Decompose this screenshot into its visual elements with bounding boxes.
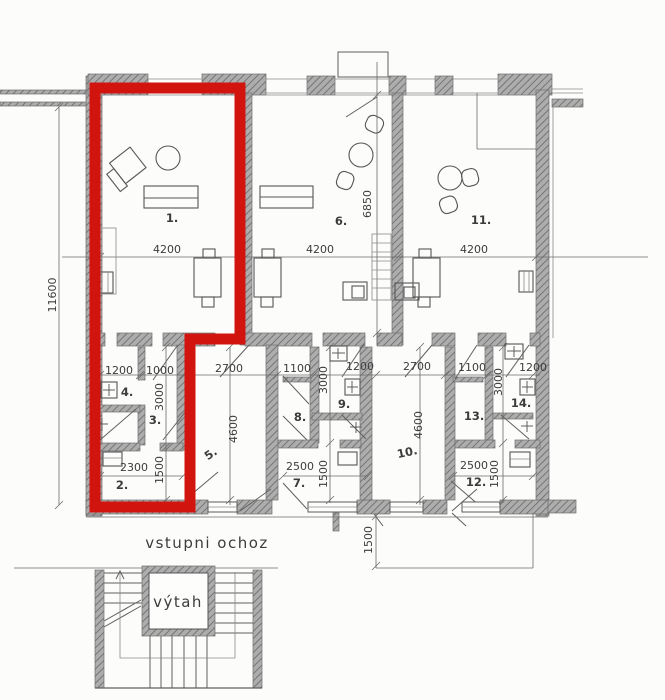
stair-treads-right xyxy=(215,573,253,633)
desk-chair xyxy=(418,297,430,307)
bay-diagonal xyxy=(346,97,377,117)
dim-room12-width: 2500 xyxy=(460,459,488,472)
radiator-room11 xyxy=(519,271,533,292)
desk-room6 xyxy=(254,258,281,297)
mid-wall xyxy=(377,333,402,346)
mid-wall xyxy=(323,333,365,346)
room-label-9: 9. xyxy=(338,397,350,411)
chair-room11 xyxy=(438,194,459,215)
wall-hall5-room7 xyxy=(266,345,278,500)
top-wall-pier xyxy=(389,76,406,95)
room-label-14: 14. xyxy=(511,396,531,410)
room-label-10: 10. xyxy=(396,443,419,461)
dim-room3-width: 1000 xyxy=(146,364,174,377)
top-wall-pier xyxy=(435,76,453,95)
shaft-ladder xyxy=(372,234,391,300)
room-label-5: 5. xyxy=(202,444,220,463)
mid-wall xyxy=(478,333,506,346)
cabinet-inner xyxy=(352,286,364,298)
room-label-12: 12. xyxy=(466,475,486,489)
stair-break-line xyxy=(104,600,141,627)
left-walkway-edge xyxy=(0,90,86,94)
bottom-wall xyxy=(357,500,390,514)
armchair-room1 xyxy=(102,147,147,191)
wall-above-room2 xyxy=(95,443,140,451)
wall-room9-lower xyxy=(312,413,362,420)
exterior-walls xyxy=(0,74,583,516)
dim-room2-depth: 1500 xyxy=(153,456,166,484)
dim-room8-width: 1100 xyxy=(283,362,311,375)
sofa-room1 xyxy=(144,186,198,208)
round-table-room1 xyxy=(156,146,180,170)
wall-room8-room9 xyxy=(310,347,319,443)
dimension-labels-horizontal: 4200 4200 4200 1200 1000 2700 1100 1200 … xyxy=(105,243,547,474)
staircase: výtah xyxy=(95,566,262,688)
floor-plan-drawing: výtah 1. 2. 3. 4. 5. 6. 7. 8. 9. 10. 11.… xyxy=(0,0,665,700)
dim-hall10-width: 2700 xyxy=(403,360,431,373)
dim-room14-width: 1200 xyxy=(519,361,547,374)
wall-room14-lower xyxy=(493,413,533,419)
room-label-7: 7. xyxy=(293,476,305,490)
dim-room13-width: 1100 xyxy=(458,361,486,374)
stair-right-wall xyxy=(253,570,262,688)
dim-room2-width: 2300 xyxy=(120,461,148,474)
mid-wall xyxy=(117,333,152,346)
floor-plan-page: výtah 1. 2. 3. 4. 5. 6. 7. 8. 9. 10. 11.… xyxy=(0,0,665,700)
dim-room6-width: 4200 xyxy=(306,243,334,256)
bottom-wall xyxy=(423,500,447,514)
dim-hall5-width: 2700 xyxy=(215,362,243,375)
wall-above-room12 xyxy=(515,440,540,448)
room-label-2: 2. xyxy=(116,478,128,492)
chair-room6 xyxy=(335,170,356,191)
top-right-ledge-lines xyxy=(552,89,583,93)
desk-room1 xyxy=(194,258,221,297)
dim-left-bath-depth: 3000 xyxy=(153,383,166,411)
bay-window xyxy=(338,52,388,77)
cabinet-room6 xyxy=(343,282,367,300)
room-label-6: 6. xyxy=(335,214,347,228)
round-table-room6 xyxy=(349,143,373,167)
radiator-lines xyxy=(524,271,529,292)
dim-right-bath-depth: 3000 xyxy=(492,368,505,396)
dim-hall10-depth: 4600 xyxy=(412,411,425,439)
dim-overall-height: 11600 xyxy=(46,278,59,313)
dim-room11-width: 4200 xyxy=(460,243,488,256)
room-label-1: 1. xyxy=(166,211,178,225)
walkway-label: vstupni ochoz xyxy=(145,534,269,552)
ladder-rungs xyxy=(372,243,391,288)
right-wall xyxy=(536,90,549,516)
dim-room9-width: 1200 xyxy=(346,360,374,373)
desk-chair xyxy=(202,297,214,307)
wall-room6-room11 xyxy=(392,93,403,345)
wall-above-room12 xyxy=(455,440,495,448)
round-table-room11 xyxy=(438,166,462,190)
dim-room4-width: 1200 xyxy=(105,364,133,377)
dim-room6-depth: 6850 xyxy=(361,190,374,218)
room-label-11: 11. xyxy=(471,213,491,227)
dim-room12-depth: 1500 xyxy=(488,460,501,488)
dim-room7-width: 2500 xyxy=(286,460,314,473)
top-wall-pier xyxy=(307,76,335,95)
dim-walkway-depth: 1500 xyxy=(362,526,375,554)
room-label-8: 8. xyxy=(294,410,306,424)
left-walkway-edge xyxy=(0,102,86,106)
wall-above-room7 xyxy=(278,440,318,448)
room-label-3: 3. xyxy=(149,413,161,427)
dim-mid-bath-depth: 3000 xyxy=(317,366,330,394)
bottom-wall xyxy=(500,500,548,514)
mid-wall xyxy=(432,333,455,346)
wall-room13-inner xyxy=(453,377,483,382)
room-label-13: 13. xyxy=(464,409,484,423)
elevator-label: výtah xyxy=(153,593,203,611)
bottom-right-stub xyxy=(548,500,576,513)
desk-chair xyxy=(261,297,273,307)
chair-room11 xyxy=(460,167,480,188)
mid-wall xyxy=(245,333,312,346)
room-label-4: 4. xyxy=(121,385,133,399)
walkway-divider xyxy=(333,513,339,531)
bottom-wall xyxy=(237,500,272,514)
radiator-lines xyxy=(102,272,108,293)
closet-room1 xyxy=(102,228,116,294)
wall-hall10-room13 xyxy=(445,347,455,500)
stair-left-wall xyxy=(95,570,104,688)
dim-room7-depth: 1500 xyxy=(317,460,330,488)
dim-hall5-depth: 4600 xyxy=(227,415,240,443)
chair-room6 xyxy=(363,113,385,135)
dim-room1-width: 4200 xyxy=(153,243,181,256)
mid-wall xyxy=(530,333,540,346)
stair-treads-bottom xyxy=(150,636,207,688)
wall-above-room7 xyxy=(340,440,361,448)
top-right-stub xyxy=(552,99,583,107)
desk-room11 xyxy=(413,258,440,297)
